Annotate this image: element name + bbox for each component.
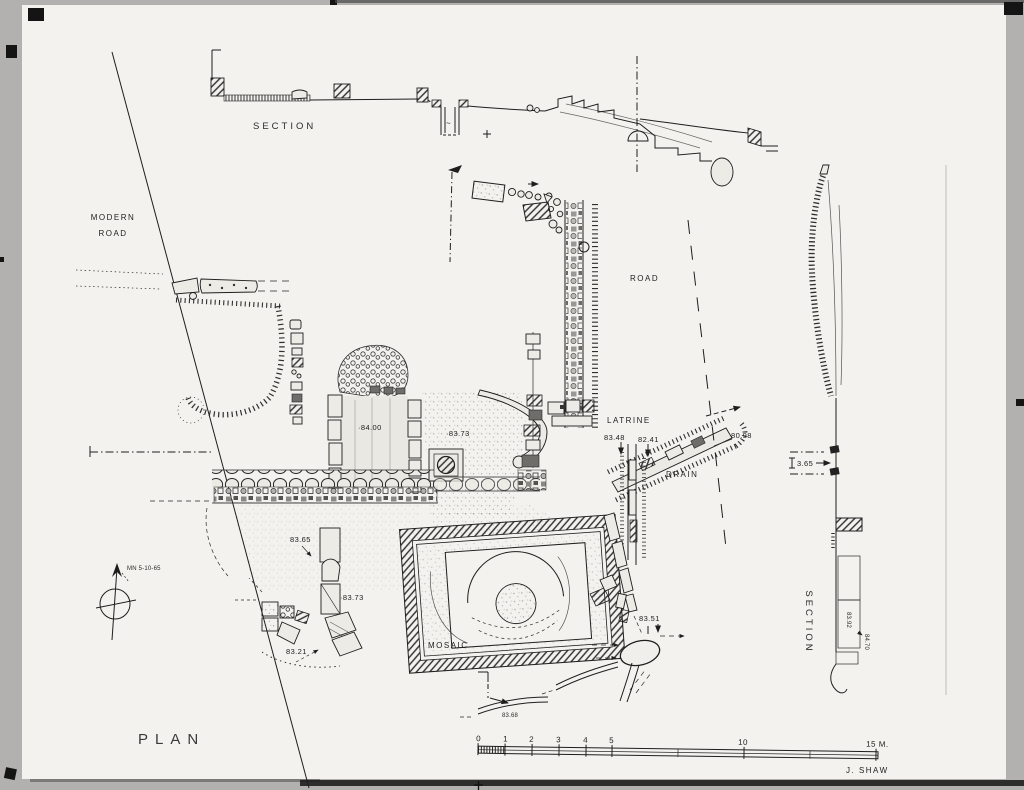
elevation-oval: 83.51 — [639, 614, 660, 623]
elevation-sw-stones: 83.21 — [286, 647, 307, 656]
scale-tick-3: 3 — [556, 735, 561, 744]
elevation-court: ·83.73 — [446, 429, 470, 438]
elevation-latrine-w: 83.48 — [604, 433, 625, 442]
elevation-west-wall: 83.65 — [290, 535, 311, 544]
plan-title: PLAN — [138, 731, 205, 748]
scale-tick-0: 0 — [476, 734, 481, 743]
drawing-canvas: ~ SECTION MODERN ROAD — [0, 0, 1024, 790]
pit-mark: ~ — [446, 119, 452, 128]
elevation-south-channel: 83.68 — [502, 713, 518, 719]
mosaic-label: MOSAIC — [428, 641, 469, 650]
elevation-section-offset: 3.65 — [797, 459, 813, 468]
scale-tick-10: 10 — [738, 738, 748, 747]
elevation-room: ·84.00 — [358, 423, 382, 432]
scale-tick-15: 15 M. — [866, 740, 889, 749]
section-right-label: SECTION — [803, 590, 814, 653]
elevation-blocks: ·83.73 — [340, 593, 364, 602]
latrine-label: LATRINE — [607, 416, 651, 425]
north-note-label: MN 5-10-65 — [127, 566, 161, 572]
section-top-label: SECTION — [253, 121, 316, 132]
road-label: ROAD — [630, 274, 659, 283]
scale-tick-2: 2 — [529, 735, 534, 744]
author-credit: J. SHAW — [846, 766, 889, 775]
elevation-drain-end: 80.98 — [731, 431, 752, 440]
scale-tick-1: 1 — [503, 735, 508, 744]
scanned-drawing-page: ~ SECTION MODERN ROAD — [0, 0, 1024, 790]
drain-label: DRAIN — [666, 470, 698, 479]
elevation-latrine-e: 82.41 — [638, 435, 659, 444]
scale-tick-5: 5 — [609, 736, 614, 745]
elevation-section-a: 83.92 — [845, 612, 851, 628]
modern-road-label-2: ROAD — [98, 229, 127, 238]
elevation-section-b: 84.70 — [863, 634, 869, 650]
scale-tick-4: 4 — [583, 736, 588, 745]
modern-road-label-1: MODERN — [91, 213, 136, 222]
